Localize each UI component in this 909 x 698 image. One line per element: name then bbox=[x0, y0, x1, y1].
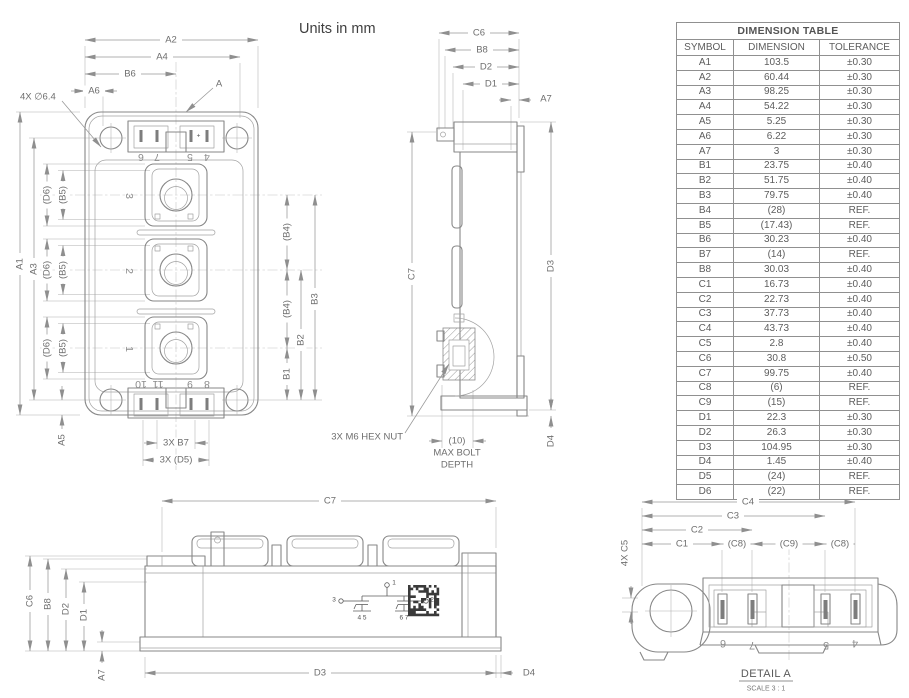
drawing-sheet: + 6 7 5 4 3 2 1 10 11 9 8 bbox=[0, 0, 909, 698]
dim-label-b5: (B5) bbox=[58, 339, 69, 357]
pin-number: 10 bbox=[135, 378, 147, 390]
dim-label-d5: 3X (D5) bbox=[160, 455, 193, 466]
dim-label-a1: A1 bbox=[15, 258, 26, 270]
bolt-depth-note-1: MAX BOLT bbox=[433, 448, 481, 459]
dim-label-d3: D3 bbox=[546, 260, 557, 272]
hex-nut-section bbox=[437, 318, 494, 396]
mounting-holes bbox=[96, 123, 252, 415]
dim-label-b8: B8 bbox=[43, 598, 54, 610]
dim-label-d3: D3 bbox=[314, 668, 326, 679]
dim-label-a2: A2 bbox=[165, 35, 177, 46]
section-marker-a: A bbox=[216, 79, 223, 90]
detail-pin-number: 5 bbox=[823, 639, 829, 651]
schematic-gates-left: 4 5 bbox=[357, 615, 366, 622]
dim-label-b8: B8 bbox=[476, 45, 488, 56]
dim-label-b5: (B5) bbox=[58, 186, 69, 204]
dim-label-b4: (B4) bbox=[282, 223, 293, 241]
dim-label-a4: A4 bbox=[156, 52, 168, 63]
dim-label-d6: (D6) bbox=[42, 186, 53, 204]
schematic-pin-1: 1 bbox=[392, 580, 396, 587]
bolt-depth-value: (10) bbox=[449, 436, 466, 447]
detail-pin-number: 7 bbox=[749, 639, 755, 651]
detail-a-view: 6 7 5 4 C4 C3 C2 C1 (C8) (C9) (C8) 4X C5… bbox=[620, 497, 898, 693]
dim-label-d1: D1 bbox=[79, 609, 90, 621]
terminal-number: 3 bbox=[123, 193, 135, 199]
dim-label-b4: (B4) bbox=[282, 300, 293, 318]
dim-label-c3: C3 bbox=[727, 511, 739, 522]
bottom-view: 1 3 2 4 5 6 7 C7 C6 B8 D2 D1 A7 D3 D4 bbox=[25, 496, 536, 681]
terminal-number: 2 bbox=[123, 268, 135, 274]
dim-label-b3: B3 bbox=[310, 293, 321, 305]
schematic-pin-3: 3 bbox=[332, 597, 336, 604]
dim-label-d6: (D6) bbox=[42, 339, 53, 357]
dim-label-d2: D2 bbox=[61, 603, 72, 615]
detail-pin-number: 6 bbox=[720, 637, 726, 649]
dim-label-c9: (C9) bbox=[780, 539, 798, 550]
dim-label-c6: C6 bbox=[25, 595, 36, 607]
dim-label-b1: B1 bbox=[282, 368, 293, 380]
dim-label-c6: C6 bbox=[473, 28, 485, 39]
dim-label-c1: C1 bbox=[676, 539, 688, 550]
pin-number: 4 bbox=[204, 151, 210, 163]
dim-label-c5: 4X C5 bbox=[620, 540, 631, 566]
hex-nut-callout: 3X M6 HEX NUT bbox=[331, 432, 403, 443]
dim-label-a7: A7 bbox=[540, 94, 552, 105]
dim-label-c4: C4 bbox=[742, 497, 754, 508]
detail-pin-number: 4 bbox=[852, 637, 858, 649]
dim-label-c7: C7 bbox=[407, 268, 418, 280]
dim-label-d2: D2 bbox=[480, 62, 492, 73]
dim-label-b5: (B5) bbox=[58, 261, 69, 279]
dim-label-c2: C2 bbox=[691, 525, 703, 536]
dim-label-d6: (D6) bbox=[42, 261, 53, 279]
dim-label-c8: (C8) bbox=[728, 539, 746, 550]
dim-label-a3: A3 bbox=[29, 263, 40, 275]
polarity-mark: + bbox=[197, 133, 201, 140]
terminal-number: 1 bbox=[123, 346, 135, 352]
dim-label-c8: (C8) bbox=[831, 539, 849, 550]
bottom-outline bbox=[140, 532, 501, 651]
pin-number: 11 bbox=[152, 378, 163, 390]
pin-number: 8 bbox=[204, 378, 210, 390]
pin-number: 9 bbox=[187, 378, 193, 390]
dim-label-b2: B2 bbox=[296, 334, 307, 346]
bolt-depth-note-2: DEPTH bbox=[441, 460, 473, 471]
dim-label-d4: D4 bbox=[546, 435, 557, 447]
dim-label-a6: A6 bbox=[88, 86, 100, 97]
detail-scale: SCALE 3 : 1 bbox=[747, 686, 786, 693]
detail-title: DETAIL A bbox=[741, 668, 792, 680]
front-view: + 6 7 5 4 3 2 1 10 11 9 8 bbox=[15, 35, 323, 471]
pin-number: 6 bbox=[138, 151, 144, 163]
side-view: C6 B8 D2 D1 A7 C7 D3 D4 3X M6 HEX NUT (1… bbox=[331, 28, 556, 471]
pin-number: 5 bbox=[187, 151, 193, 163]
dim-label-c7: C7 bbox=[324, 496, 336, 507]
dim-label-d4: D4 bbox=[523, 668, 535, 679]
module-outline bbox=[85, 112, 258, 415]
dim-label-b6: B6 bbox=[124, 69, 136, 80]
dim-label-a5: A5 bbox=[57, 434, 68, 446]
hole-callout: 4X ∅6.4 bbox=[20, 92, 56, 103]
dim-label-b7: 3X B7 bbox=[163, 438, 189, 449]
dim-label-d1: D1 bbox=[485, 79, 497, 90]
schematic-gates-right: 6 7 bbox=[399, 615, 408, 622]
pin-number: 7 bbox=[154, 151, 160, 163]
dim-label-a7: A7 bbox=[97, 669, 108, 681]
